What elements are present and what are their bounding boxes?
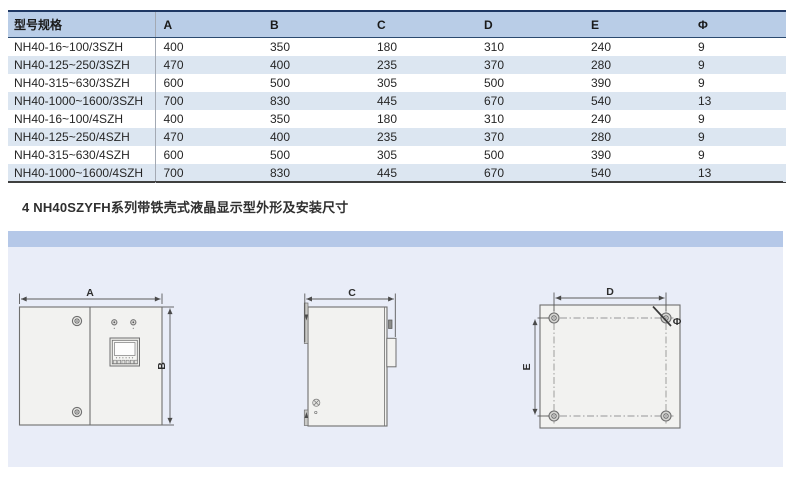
dim-b-cell: 350 (262, 38, 369, 57)
table-row: NH40-16~100/3SZH 400 350 180 310 240 9 (8, 38, 786, 57)
hinge-knob-icon (72, 316, 81, 325)
section-heading: 4 NH40SZYFH系列带铁壳式液晶显示型外形及安装尺寸 (22, 197, 349, 216)
model-cell: NH40-125~250/4SZH (8, 128, 155, 146)
dim-d-cell: 370 (476, 56, 583, 74)
model-cell: NH40-315~630/3SZH (8, 74, 155, 92)
mounting-hole-icon (549, 313, 559, 323)
dim-a-cell: 600 (155, 146, 262, 164)
table-row: NH40-1000~1600/4SZH 700 830 445 670 540 … (8, 164, 786, 183)
dim-c-cell: 235 (369, 128, 476, 146)
lcd-display-unit (110, 338, 140, 366)
dim-c-cell: 305 (369, 146, 476, 164)
table-row: NH40-16~100/4SZH 400 350 180 310 240 9 (8, 110, 786, 128)
dim-e-cell: 540 (583, 164, 690, 183)
table-row: NH40-1000~1600/3SZH 700 830 445 670 540 … (8, 92, 786, 110)
dim-d-cell: 310 (476, 38, 583, 57)
dim-e-cell: 240 (583, 110, 690, 128)
panel-header-strip (8, 231, 783, 247)
hinge-knob-icon (72, 407, 81, 416)
dim-phi-cell: 9 (690, 74, 786, 92)
dim-e-cell: 390 (583, 146, 690, 164)
table-row: NH40-315~630/3SZH 600 500 305 500 390 9 (8, 74, 786, 92)
dimension-b-label: B (156, 362, 168, 370)
model-cell: NH40-315~630/4SZH (8, 146, 155, 164)
dim-c-cell: 445 (369, 164, 476, 183)
spec-table-section: 型号规格 A B C D E Φ NH40-16~100/3SZH 400 35… (8, 10, 783, 183)
dim-a-cell: 700 (155, 164, 262, 183)
dim-d-cell: 500 (476, 74, 583, 92)
dim-a-cell: 400 (155, 38, 262, 57)
door-latch (389, 320, 393, 329)
dim-b-cell: 400 (262, 56, 369, 74)
dim-a-cell: 470 (155, 128, 262, 146)
mounting-hole-icon (661, 411, 671, 421)
dim-b-cell: 350 (262, 110, 369, 128)
enclosure-front-face (20, 307, 163, 425)
dim-a-cell: 400 (155, 110, 262, 128)
col-header-model: 型号规格 (8, 11, 155, 38)
dimension-drawings-panel: A B (8, 247, 783, 467)
dim-phi-cell: 9 (690, 128, 786, 146)
mounting-plate (540, 305, 680, 428)
dim-phi-cell: 9 (690, 110, 786, 128)
dim-c-cell: 180 (369, 38, 476, 57)
col-header-b: B (262, 11, 369, 38)
dim-a-cell: 600 (155, 74, 262, 92)
dim-phi-cell: 9 (690, 146, 786, 164)
dim-c-cell: 305 (369, 74, 476, 92)
dimension-a-label: A (86, 287, 94, 299)
col-header-e: E (583, 11, 690, 38)
dim-d-cell: 670 (476, 164, 583, 183)
model-cell: NH40-1000~1600/4SZH (8, 164, 155, 183)
dim-b-cell: 500 (262, 74, 369, 92)
dimension-c-label: C (348, 287, 356, 299)
mounting-hole-icon (549, 411, 559, 421)
dimension-d-label: D (606, 286, 614, 298)
model-cell: NH40-125~250/3SZH (8, 56, 155, 74)
front-view-drawing: A B (20, 287, 175, 425)
dim-e-cell: 280 (583, 56, 690, 74)
col-header-phi: Φ (690, 11, 786, 38)
dim-phi-cell: 13 (690, 92, 786, 110)
col-header-d: D (476, 11, 583, 38)
table-row: NH40-315~630/4SZH 600 500 305 500 390 9 (8, 146, 786, 164)
dimension-phi-label: Φ (673, 316, 682, 328)
dim-e-cell: 280 (583, 128, 690, 146)
dim-c-cell: 445 (369, 92, 476, 110)
enclosure-side-face (308, 307, 387, 426)
dim-a-cell: 700 (155, 92, 262, 110)
table-row: NH40-125~250/3SZH 470 400 235 370 280 9 (8, 56, 786, 74)
dim-d-cell: 500 (476, 146, 583, 164)
col-header-c: C (369, 11, 476, 38)
dim-d-cell: 310 (476, 110, 583, 128)
dim-a-cell: 470 (155, 56, 262, 74)
dimension-drawings-svg: A B (8, 247, 783, 467)
spec-table: 型号规格 A B C D E Φ NH40-16~100/3SZH 400 35… (8, 10, 786, 183)
dim-d-cell: 670 (476, 92, 583, 110)
dim-phi-cell: 13 (690, 164, 786, 183)
door-handle (387, 338, 396, 367)
dim-b-cell: 830 (262, 164, 369, 183)
dim-c-cell: 235 (369, 56, 476, 74)
table-row: NH40-125~250/4SZH 470 400 235 370 280 9 (8, 128, 786, 146)
table-header-row: 型号规格 A B C D E Φ (8, 11, 786, 38)
model-cell: NH40-1000~1600/3SZH (8, 92, 155, 110)
dim-d-cell: 370 (476, 128, 583, 146)
dim-b-cell: 400 (262, 128, 369, 146)
dim-b-cell: 500 (262, 146, 369, 164)
dimension-e-label: E (521, 363, 533, 370)
dim-e-cell: 540 (583, 92, 690, 110)
dim-c-cell: 180 (369, 110, 476, 128)
dim-e-cell: 390 (583, 74, 690, 92)
side-view-drawing: C (304, 287, 396, 426)
dim-b-cell: 830 (262, 92, 369, 110)
model-cell: NH40-16~100/3SZH (8, 38, 155, 57)
col-header-a: A (155, 11, 262, 38)
dim-e-cell: 240 (583, 38, 690, 57)
table-double-rule (8, 181, 783, 182)
lcd-screen (115, 343, 136, 356)
model-cell: NH40-16~100/4SZH (8, 110, 155, 128)
dim-phi-cell: 9 (690, 38, 786, 57)
dim-phi-cell: 9 (690, 56, 786, 74)
back-view-drawing: D E Φ (521, 286, 682, 428)
